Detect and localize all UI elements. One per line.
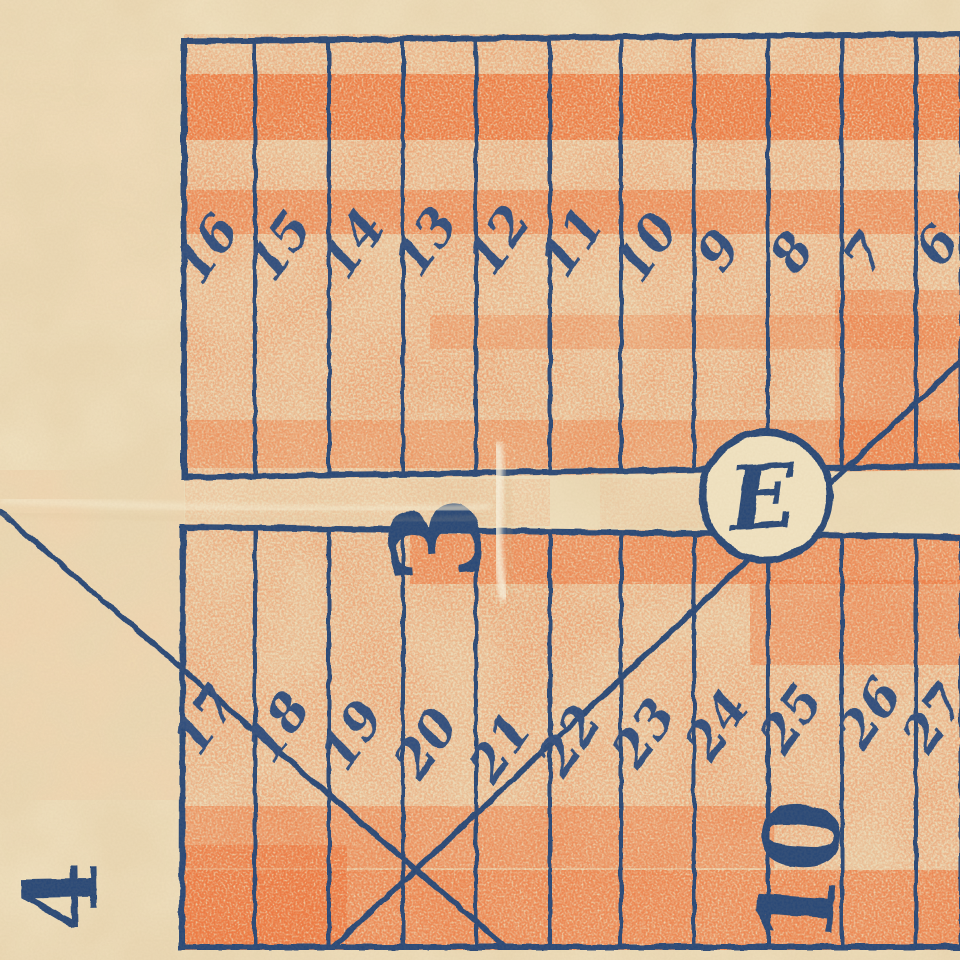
plat-map-scan: E 16 15 14 13 12 11 10 9 8 7 6 17 18 19 … xyxy=(0,0,960,960)
plat-map-svg: E 16 15 14 13 12 11 10 9 8 7 6 17 18 19 … xyxy=(0,0,960,960)
paper-grain-overlay xyxy=(0,0,960,960)
